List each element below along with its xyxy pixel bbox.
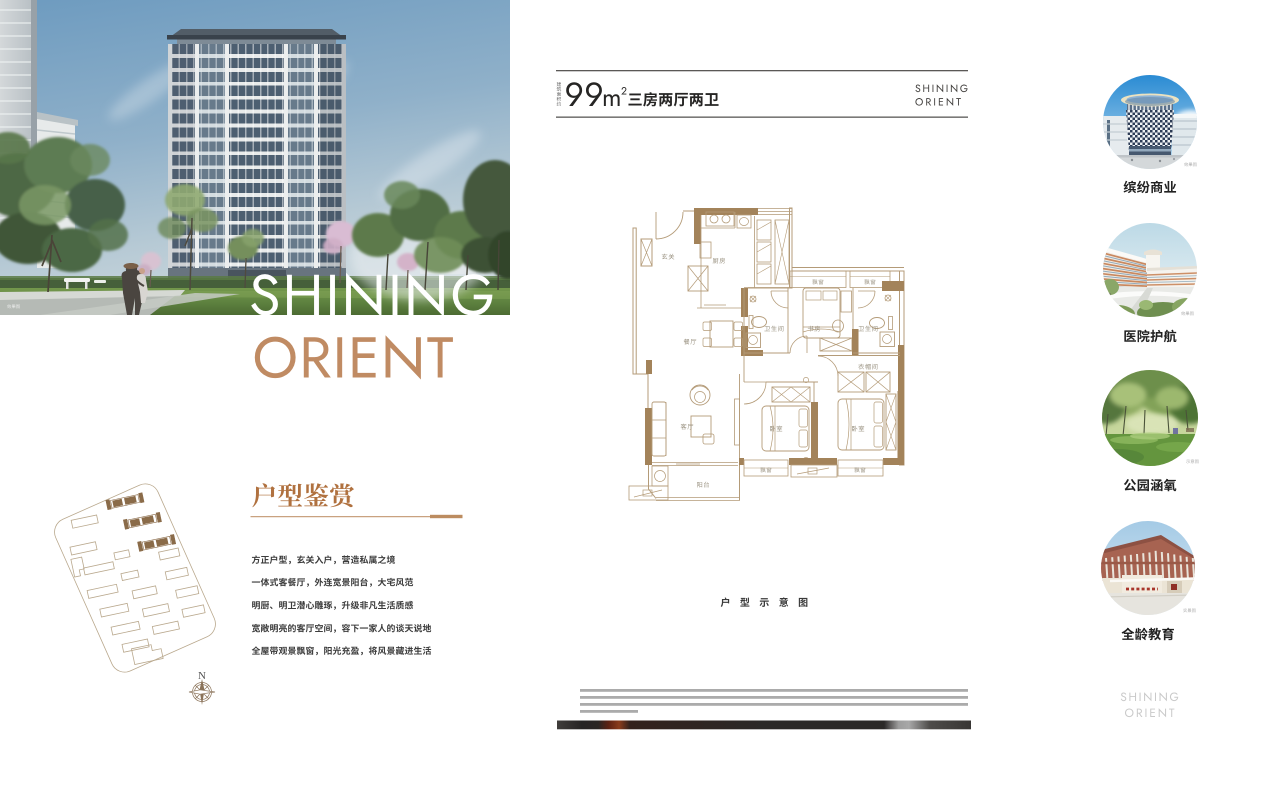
svg-text:N: N: [198, 670, 206, 682]
